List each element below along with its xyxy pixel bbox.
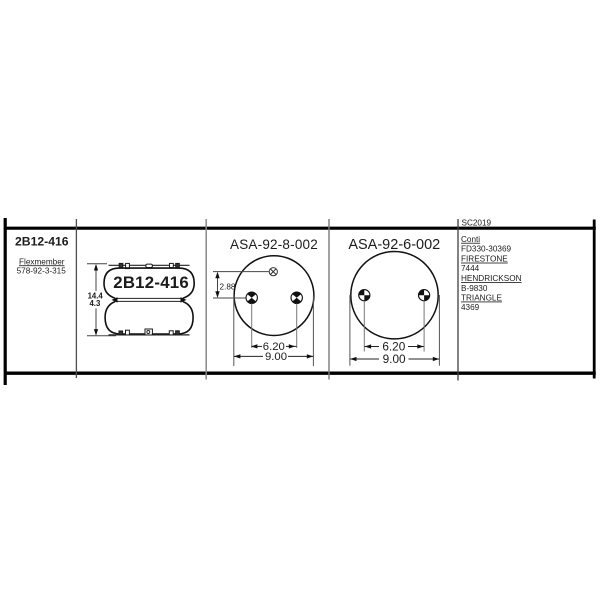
svg-text:FIRESTONE: FIRESTONE xyxy=(461,255,508,264)
svg-text:2.88: 2.88 xyxy=(220,283,236,292)
svg-text:ASA-92-6-002: ASA-92-6-002 xyxy=(348,237,440,253)
svg-text:HENDRICKSON: HENDRICKSON xyxy=(461,274,522,283)
svg-text:FD330-30369: FD330-30369 xyxy=(461,245,512,254)
svg-text:578-92-3-315: 578-92-3-315 xyxy=(17,267,67,276)
svg-text:ASA-92-8-002: ASA-92-8-002 xyxy=(230,237,318,252)
svg-text:Flexmember: Flexmember xyxy=(19,257,65,266)
svg-text:4369: 4369 xyxy=(461,303,480,312)
svg-text:9.00: 9.00 xyxy=(383,352,406,366)
svg-text:SC2019: SC2019 xyxy=(462,218,492,227)
svg-text:9.00: 9.00 xyxy=(265,351,287,363)
svg-text:TRIANGLE: TRIANGLE xyxy=(461,294,502,303)
svg-text:2B12-416: 2B12-416 xyxy=(15,235,69,249)
svg-text:Conti: Conti xyxy=(461,235,480,244)
svg-text:4.3: 4.3 xyxy=(89,299,101,308)
svg-text:2B12-416: 2B12-416 xyxy=(113,273,189,292)
svg-text:7444: 7444 xyxy=(461,264,480,273)
svg-text:B-9830: B-9830 xyxy=(461,284,488,293)
